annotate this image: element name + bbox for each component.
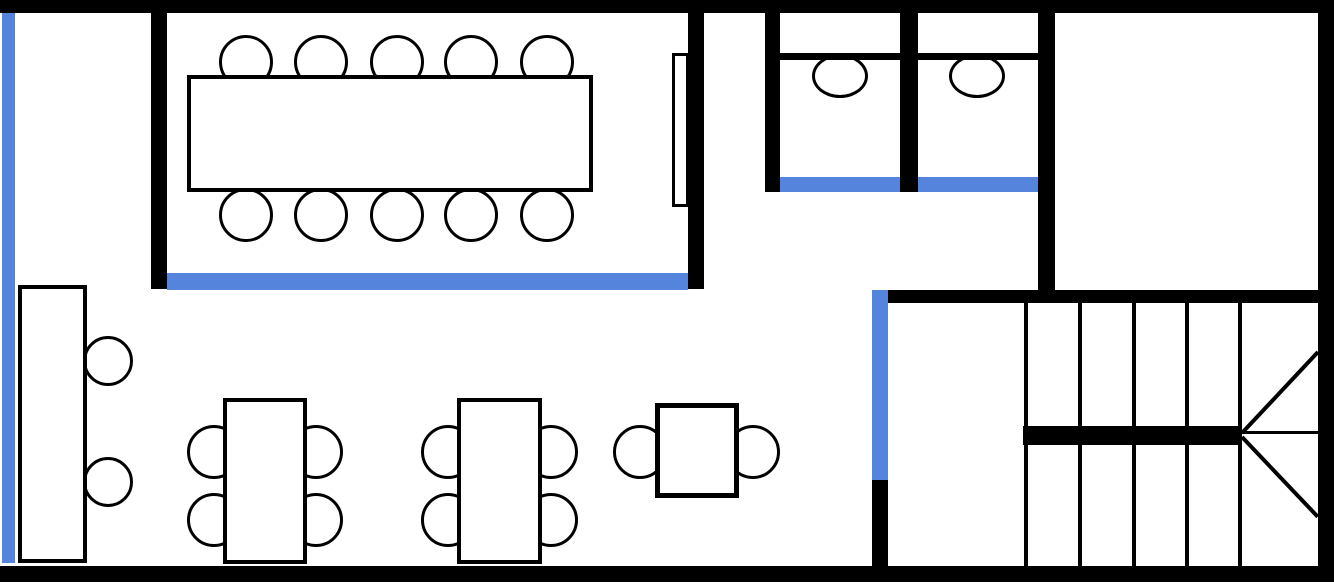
toilet-stall-divider-wall [900,13,918,192]
presentation-screen [672,53,689,207]
toilet-room-right-wall [1038,13,1055,303]
toilet-tank-line-1 [780,53,900,60]
toilet-stall-door-2 [918,177,1038,192]
toilet-bowl-1 [812,54,868,98]
work-table-2 [457,398,542,564]
conference-chair-bottom-5 [520,188,574,242]
desk-chair-2 [83,457,133,507]
side-table [655,403,739,498]
stair-tread-upper-2 [1078,303,1082,426]
stair-room-left-wall [872,480,888,566]
toilet-room-left-wall [765,13,780,192]
stair-tread-lower-1 [1024,445,1028,566]
meeting-room-left-wall [151,13,167,289]
stair-winder-edge-mid [1242,431,1318,434]
work-table-1 [223,398,307,564]
stair-tread-lower-5 [1238,445,1242,566]
stair-winder-edge-lower [1241,436,1320,519]
desk-chair-1 [83,336,133,386]
conference-chair-bottom-3 [370,188,424,242]
conference-table [187,75,593,192]
stair-tread-upper-5 [1238,303,1242,426]
stair-tread-lower-4 [1185,445,1189,566]
floor-plan [0,0,1334,588]
stair-winder-edge-upper [1241,351,1320,435]
long-desk [18,285,87,563]
meeting-room-right-wall [688,13,704,289]
conference-chair-bottom-4 [444,188,498,242]
left-glass-wall [2,13,15,563]
toilet-tank-line-2 [918,53,1038,60]
conference-chair-bottom-2 [294,188,348,242]
stair-room-glass-door [872,290,888,480]
bottom-wall [0,566,1334,582]
top-wall [0,0,1334,13]
stair-tread-lower-3 [1132,445,1136,566]
toilet-bowl-2 [949,54,1005,98]
stair-room-top-wall [888,290,1334,303]
meeting-room-glass-front [167,273,688,290]
stair-landing-edge [1023,426,1242,445]
conference-chair-bottom-1 [219,188,273,242]
stair-tread-lower-2 [1078,445,1082,566]
stair-tread-upper-3 [1132,303,1136,426]
stair-tread-upper-1 [1024,303,1028,426]
toilet-stall-door-1 [780,177,900,192]
stair-tread-upper-4 [1185,303,1189,426]
